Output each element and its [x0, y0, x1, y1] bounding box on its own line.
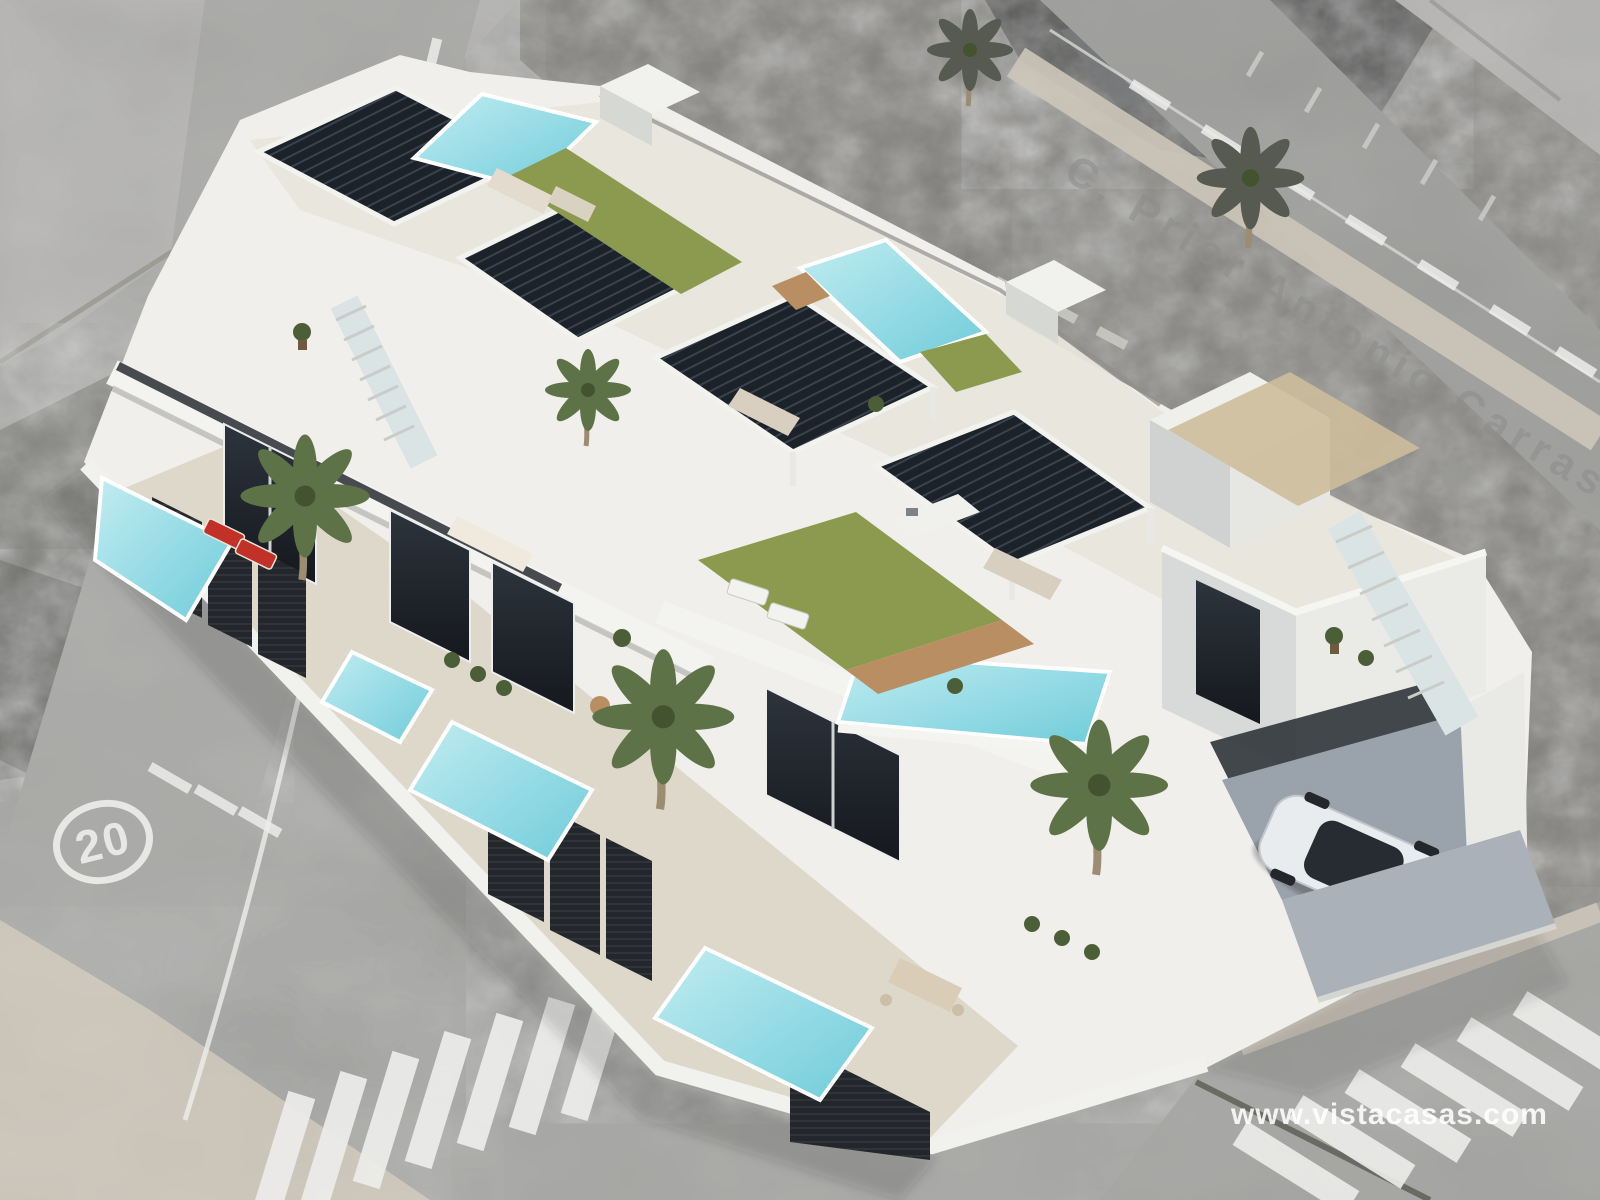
watermark: www.vistacasas.com [1230, 1098, 1548, 1131]
aerial-render-image: C. Prior Antonio Carrasco [0, 0, 1600, 1200]
